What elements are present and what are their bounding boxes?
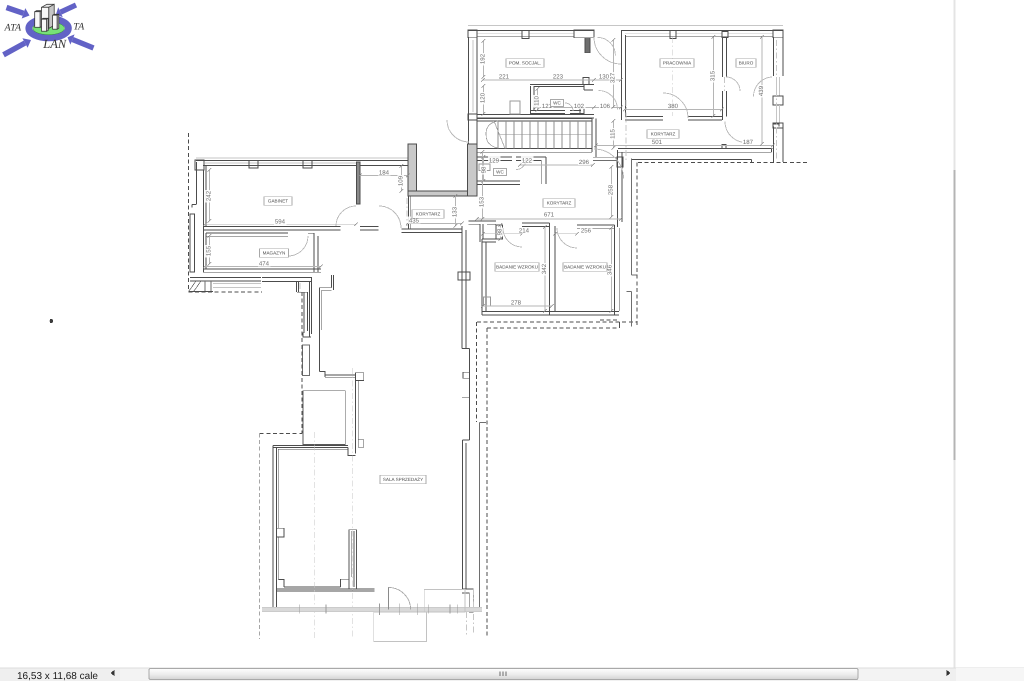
svg-text:110: 110 xyxy=(534,96,541,106)
svg-text:278: 278 xyxy=(511,300,522,307)
svg-text:242: 242 xyxy=(206,190,213,201)
svg-text:184: 184 xyxy=(379,169,390,176)
svg-text:221: 221 xyxy=(499,74,510,81)
svg-text:594: 594 xyxy=(275,218,286,225)
svg-text:PRACOWNIA: PRACOWNIA xyxy=(663,61,692,66)
svg-text:153: 153 xyxy=(479,196,486,207)
svg-text:346: 346 xyxy=(607,264,614,275)
svg-text:KORYTARZ: KORYTARZ xyxy=(651,132,676,137)
svg-text:115: 115 xyxy=(610,129,617,139)
svg-text:98: 98 xyxy=(481,166,488,173)
svg-text:BIURO: BIURO xyxy=(739,61,754,66)
svg-text:GABINET: GABINET xyxy=(268,199,288,204)
svg-text:315: 315 xyxy=(710,70,717,81)
svg-text:WC: WC xyxy=(496,170,504,175)
svg-text:TA: TA xyxy=(73,22,85,33)
svg-text:187: 187 xyxy=(743,139,754,146)
svg-text:BADANIE WZROKU: BADANIE WZROKU xyxy=(496,265,538,270)
svg-text:155: 155 xyxy=(206,245,213,256)
svg-text:109: 109 xyxy=(398,175,405,186)
svg-text:258: 258 xyxy=(608,184,615,195)
svg-text:133: 133 xyxy=(452,206,459,217)
svg-text:342: 342 xyxy=(541,263,548,274)
svg-text:327: 327 xyxy=(610,72,617,83)
svg-text:POM. SOCJAL.: POM. SOCJAL. xyxy=(509,61,541,66)
svg-text:192: 192 xyxy=(480,53,487,64)
svg-text:MAGAZYN: MAGAZYN xyxy=(263,251,286,256)
svg-text:130: 130 xyxy=(599,74,610,81)
svg-text:102: 102 xyxy=(574,103,585,110)
svg-text:120: 120 xyxy=(480,92,487,103)
svg-text:16,53 x 11,68 cale: 16,53 x 11,68 cale xyxy=(17,671,98,681)
svg-text:474: 474 xyxy=(259,261,270,268)
svg-text:122: 122 xyxy=(522,157,533,164)
svg-text:129: 129 xyxy=(489,157,500,164)
svg-text:LAN: LAN xyxy=(42,37,67,51)
svg-text:439: 439 xyxy=(758,85,765,96)
svg-text:106: 106 xyxy=(600,103,611,110)
svg-text:KORYTARZ: KORYTARZ xyxy=(416,212,441,217)
svg-text:ATA: ATA xyxy=(4,23,23,34)
svg-text:296: 296 xyxy=(579,159,590,166)
svg-text:KORYTARZ: KORYTARZ xyxy=(547,201,572,206)
svg-text:98: 98 xyxy=(497,228,504,235)
svg-text:501: 501 xyxy=(652,139,663,146)
svg-text:256: 256 xyxy=(581,228,592,235)
svg-text:214: 214 xyxy=(519,228,530,235)
svg-text:223: 223 xyxy=(553,74,564,81)
svg-text:BADANIE WZROKU: BADANIE WZROKU xyxy=(564,265,606,270)
svg-text:380: 380 xyxy=(668,103,679,110)
svg-text:SALA SPRZEDAŻY: SALA SPRZEDAŻY xyxy=(383,477,423,482)
svg-text:WC: WC xyxy=(553,101,561,106)
svg-text:671: 671 xyxy=(544,212,555,219)
